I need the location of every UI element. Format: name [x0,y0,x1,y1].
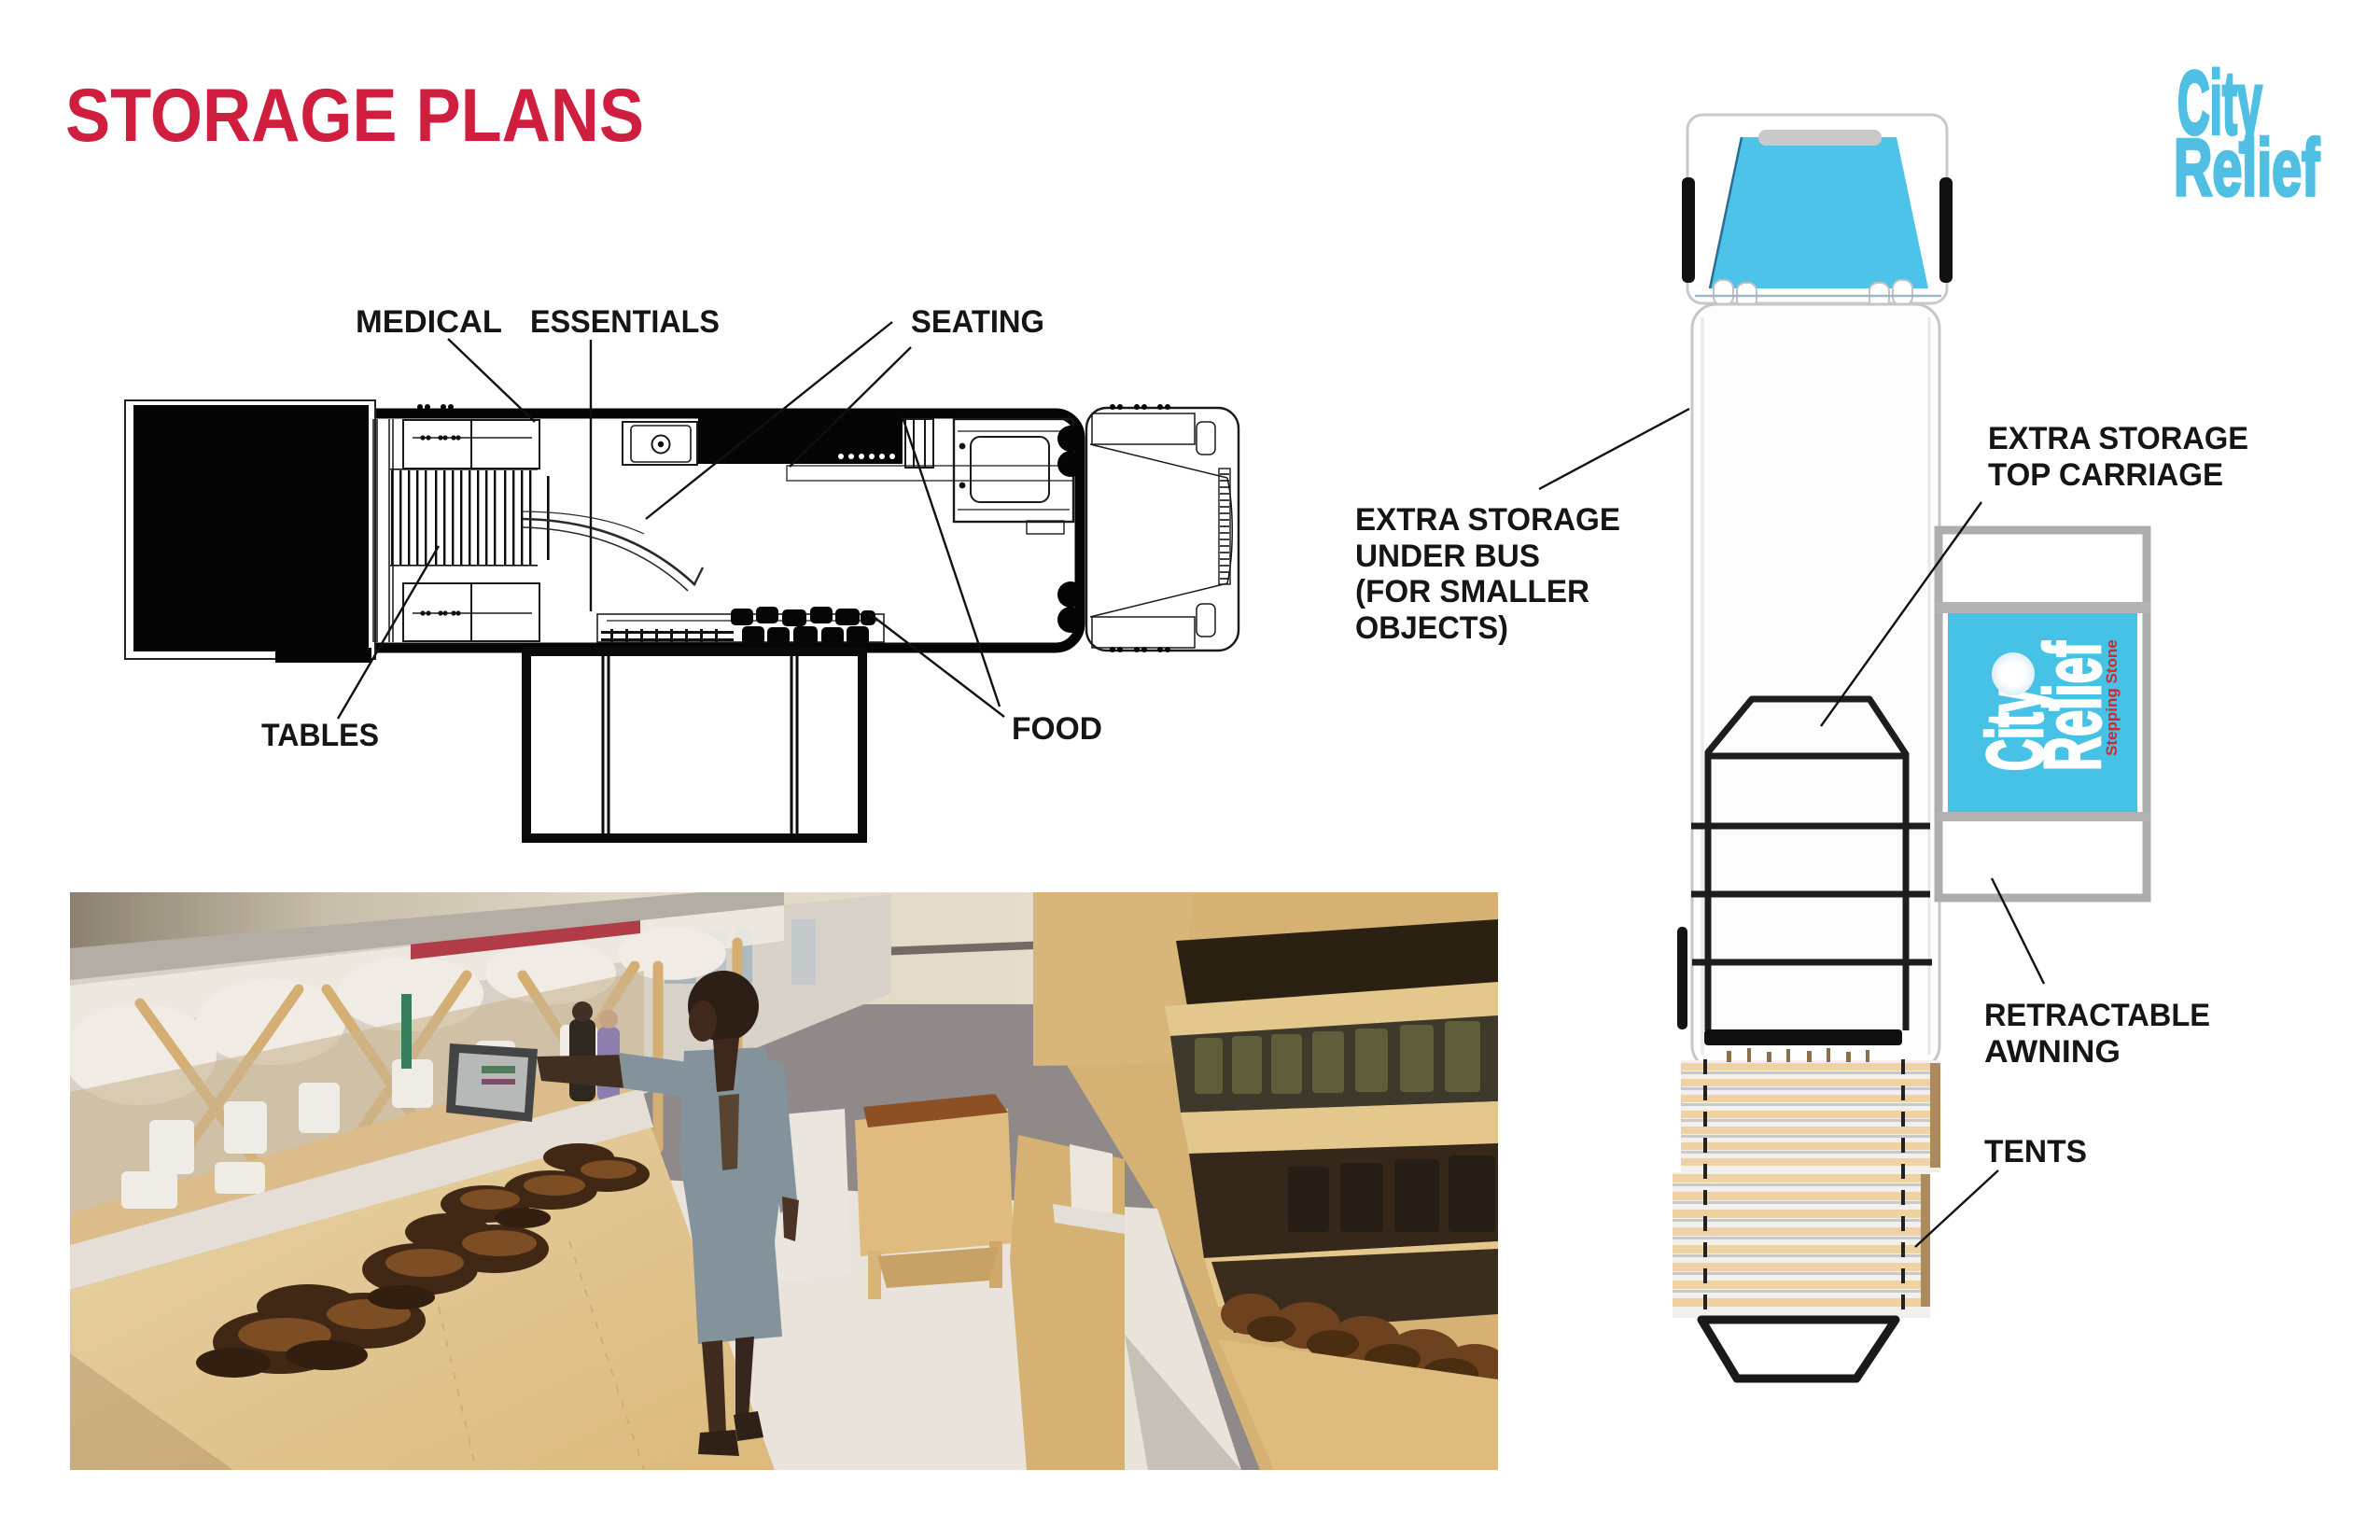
svg-text:Stepping Stone: Stepping Stone [2103,639,2121,756]
svg-text:SEATING: SEATING [911,304,1044,340]
svg-text:RETRACTABLE: RETRACTABLE [1984,998,2210,1033]
svg-text:FOOD: FOOD [1012,711,1102,747]
svg-text:EXTRA STORAGE: EXTRA STORAGE [1988,421,2248,456]
svg-text:UNDER BUS: UNDER BUS [1355,539,1540,574]
svg-text:STORAGE PLANS: STORAGE PLANS [65,74,644,158]
svg-text:AWNING: AWNING [1984,1034,2121,1070]
svg-text:MEDICAL: MEDICAL [356,304,502,340]
svg-text:TOP CARRIAGE: TOP CARRIAGE [1988,457,2223,493]
svg-text:ESSENTIALS: ESSENTIALS [530,304,720,340]
svg-text:Relief: Relief [2174,124,2320,213]
svg-text:OBJECTS): OBJECTS) [1355,610,1508,646]
svg-text:EXTRA STORAGE: EXTRA STORAGE [1355,502,1620,538]
svg-text:TENTS: TENTS [1984,1134,2087,1169]
svg-text:(FOR SMALLER: (FOR SMALLER [1355,574,1589,609]
svg-text:TABLES: TABLES [261,718,379,753]
